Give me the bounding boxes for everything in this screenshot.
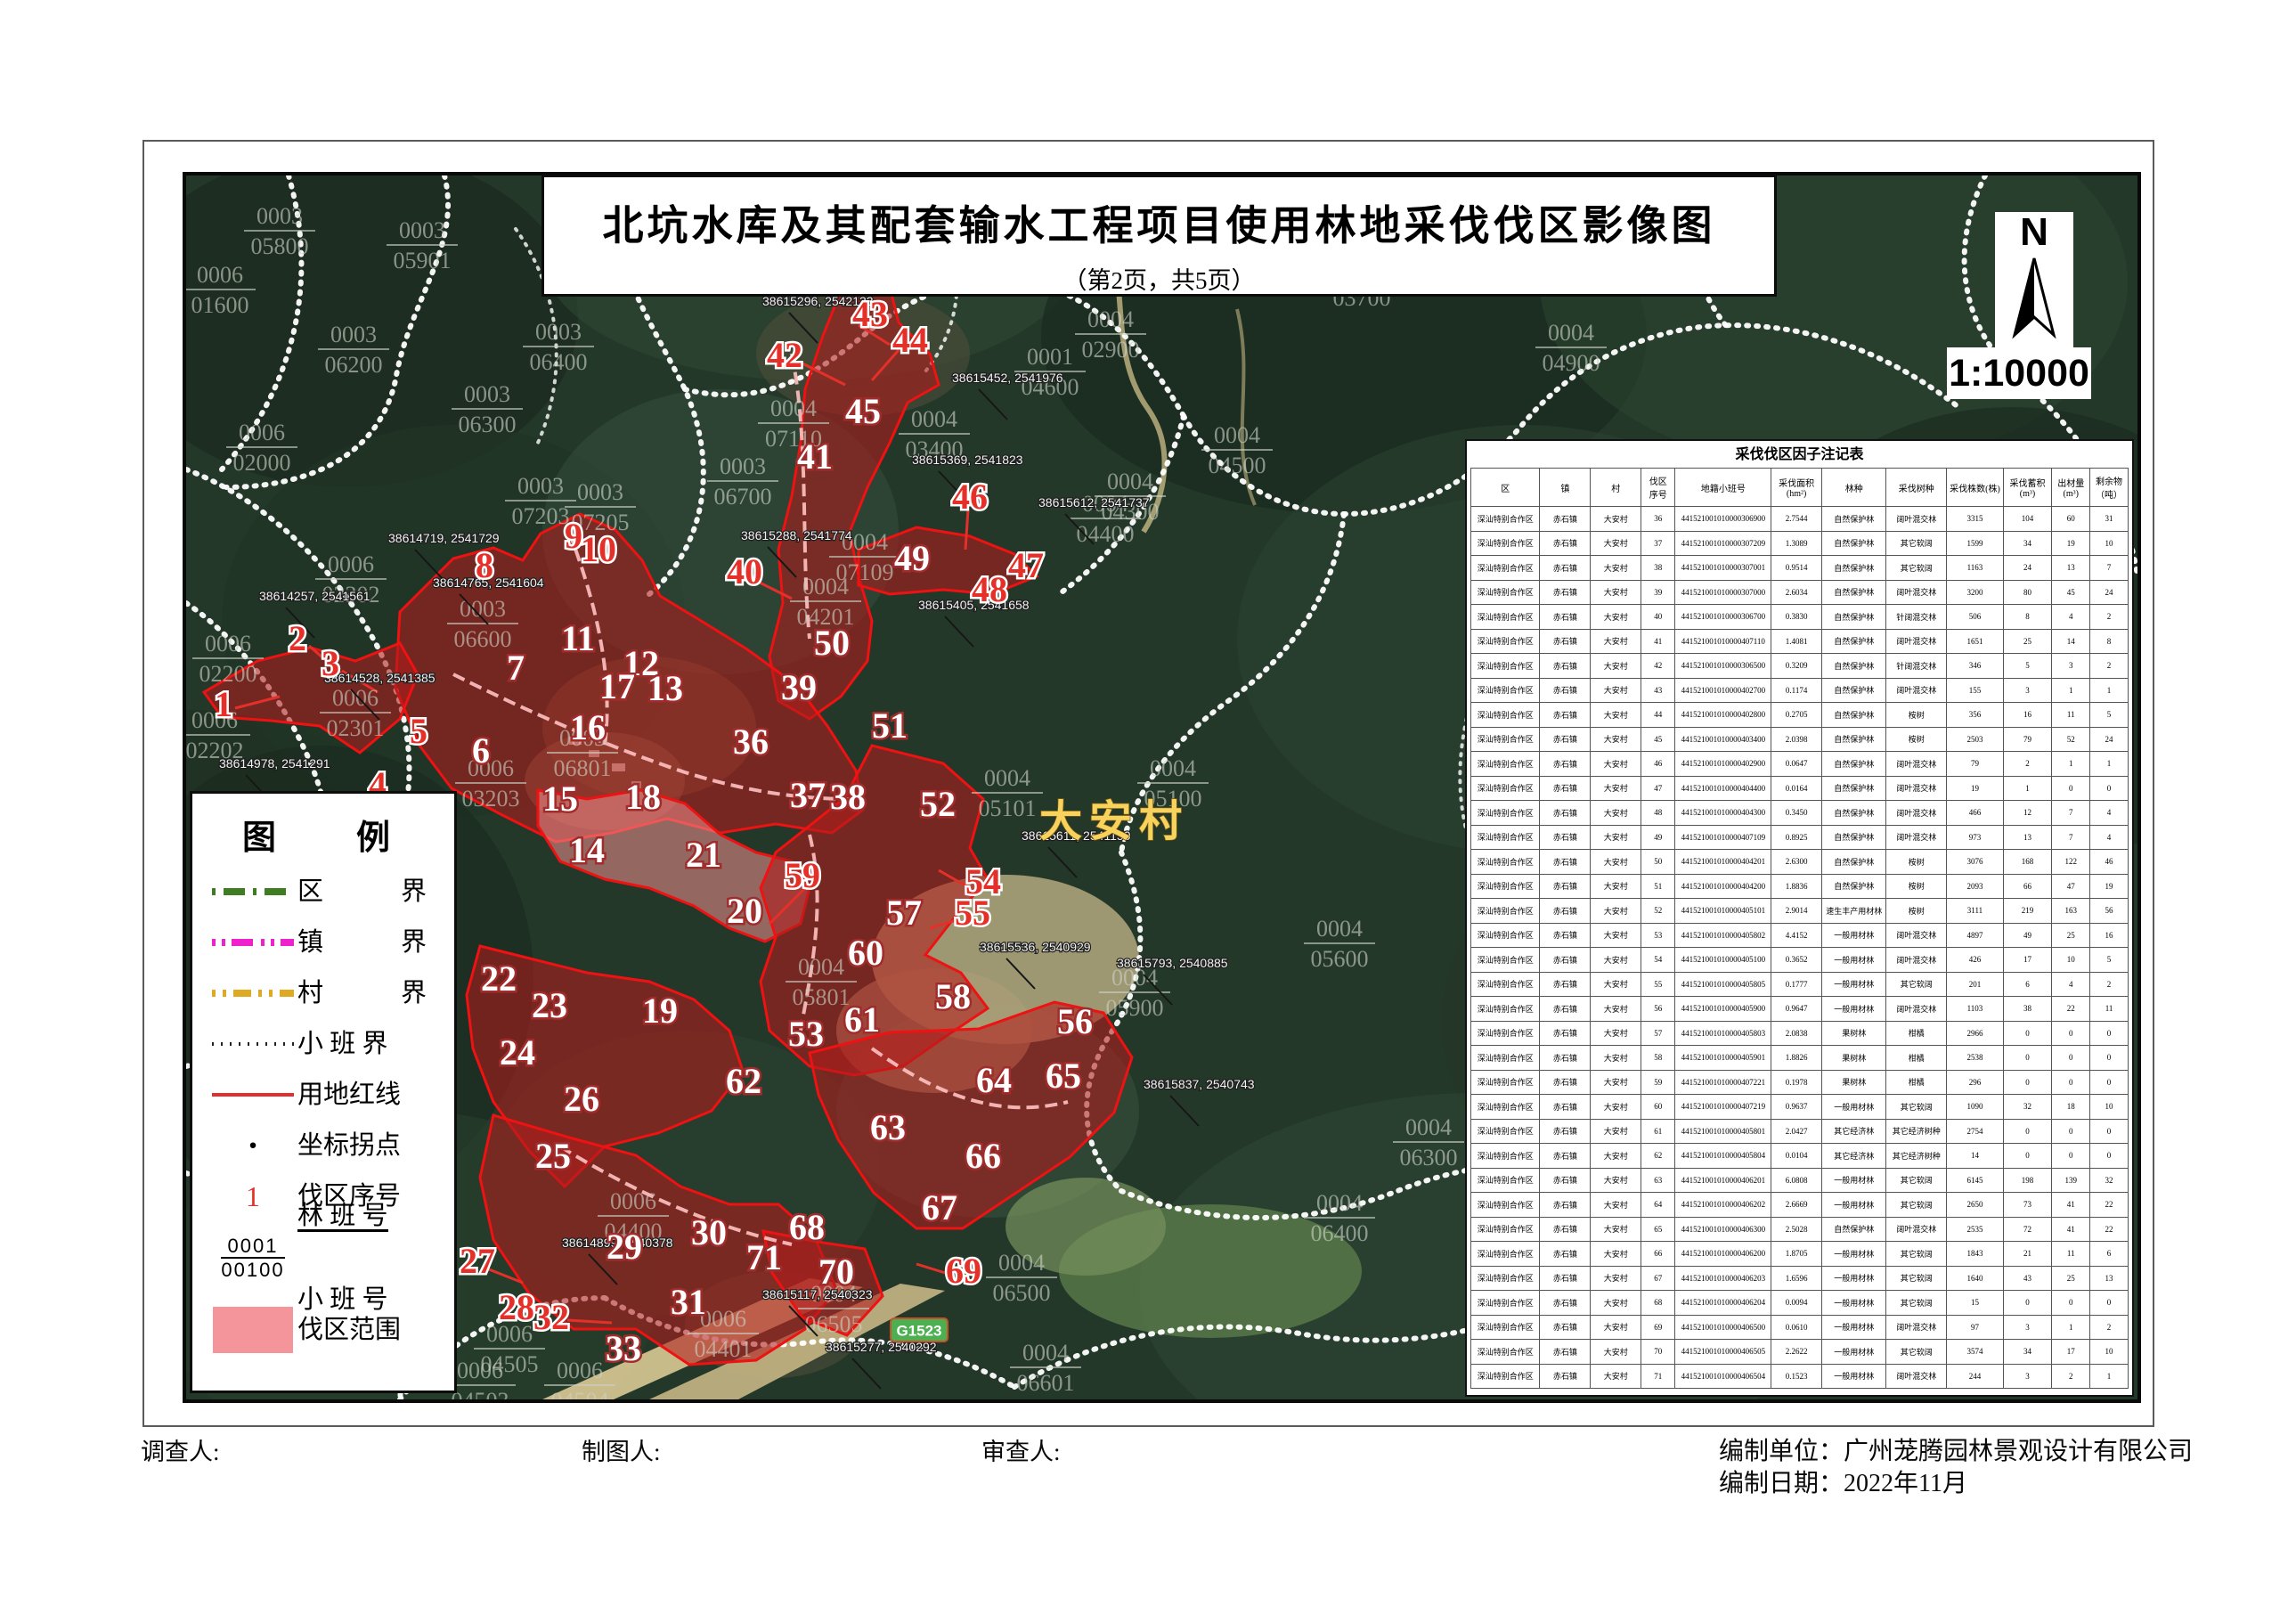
table-cell: 10 [2090, 1340, 2129, 1365]
table-cell: 3315 [1947, 507, 2003, 532]
table-cell: 大安村 [1591, 801, 1641, 826]
table-cell: 31 [2090, 507, 2129, 532]
table-cell: 赤石镇 [1540, 850, 1591, 875]
subcompartment-boundary-swatch [208, 1039, 297, 1049]
felling-area-number: 63 [870, 1107, 906, 1147]
parcel-label: 0003 [330, 322, 377, 347]
table-cell: 19 [2090, 874, 2129, 899]
table-cell: 441521001010000405100 [1675, 948, 1771, 973]
coordinate-point-swatch: · [208, 1141, 297, 1150]
felling-area-number: 55 [955, 893, 990, 933]
table-cell: 41 [1641, 629, 1675, 654]
parcel-label: 02000 [233, 450, 291, 476]
parcel-label: 0006 [610, 1188, 656, 1214]
table-row: 深汕特别合作区赤石镇大安村694415210010100004065000.06… [1471, 1315, 2129, 1340]
table-cell: 104 [2003, 507, 2052, 532]
table-row: 深汕特别合作区赤石镇大安村474415210010100004044000.01… [1471, 776, 2129, 801]
table-cell: 3 [2003, 1364, 2052, 1389]
table-cell: 19 [1947, 776, 2003, 801]
table-cell: 大安村 [1591, 1217, 1641, 1242]
felling-area-number: 23 [532, 985, 567, 1025]
table-cell: 0.3209 [1771, 654, 1822, 679]
table-cell: 2503 [1947, 727, 2003, 752]
parcel-label: 06600 [454, 626, 512, 652]
table-cell: 1090 [1947, 1095, 2003, 1120]
table-cell: 一般用材林 [1822, 1242, 1886, 1267]
table-cell: 赤石镇 [1540, 580, 1591, 605]
table-cell: 42 [1641, 654, 1675, 679]
table-cell: 40 [1641, 605, 1675, 630]
table-cell: 大安村 [1591, 1364, 1641, 1389]
town-boundary-swatch [208, 937, 297, 948]
coordinate-label: 38614528, 2541385 [324, 671, 436, 685]
table-cell: 21 [2003, 1242, 2052, 1267]
table-cell: 2650 [1947, 1193, 2003, 1218]
table-cell: 阔叶混交林 [1886, 1315, 1947, 1340]
coordinate-label: 38615288, 2541774 [741, 528, 852, 542]
coordinate-label: 38615117, 2540323 [762, 1287, 873, 1301]
table-cell: 阔叶混交林 [1886, 580, 1947, 605]
table-cell: 4 [2052, 605, 2090, 630]
parcel-label: 06300 [1400, 1145, 1458, 1170]
table-cell: 1 [2003, 776, 2052, 801]
table-cell: 深汕特别合作区 [1471, 948, 1540, 973]
table-cell: 大安村 [1591, 1193, 1641, 1218]
north-label: N [1995, 212, 2073, 253]
table-cell: 441521001010000404300 [1675, 801, 1771, 826]
felling-area-number: 11 [561, 618, 595, 658]
table-cell: 0.1174 [1771, 678, 1822, 703]
column-header: 出材量 (m³) [2052, 469, 2090, 507]
felling-area-number: 15 [542, 779, 578, 819]
felling-area-number: 64 [976, 1060, 1012, 1100]
table-cell: 0.3652 [1771, 948, 1822, 973]
table-cell: 深汕特别合作区 [1471, 1070, 1540, 1095]
table-cell: 51 [1641, 874, 1675, 899]
felling-area-number: 17 [599, 666, 635, 706]
table-cell: 72 [2003, 1217, 2052, 1242]
parcel-label: 0004 [998, 1250, 1045, 1276]
table-cell: 赤石镇 [1540, 1291, 1591, 1316]
table-cell: 一般用材林 [1822, 1364, 1886, 1389]
table-cell: 53 [1641, 923, 1675, 948]
table-cell: 1 [2090, 678, 2129, 703]
table-cell: 34 [2003, 1340, 2052, 1365]
table-cell: 2.6669 [1771, 1193, 1822, 1218]
felling-area-number: 18 [625, 777, 661, 817]
table-cell: 52 [2052, 727, 2090, 752]
table-cell: 346 [1947, 654, 2003, 679]
table-cell: 0.9514 [1771, 556, 1822, 581]
table-row: 深汕特别合作区赤石镇大安村574415210010100004058032.08… [1471, 1021, 2129, 1046]
table-cell: 2966 [1947, 1021, 2003, 1046]
table-cell: 506 [1947, 605, 2003, 630]
table-cell: 赤石镇 [1540, 507, 1591, 532]
table-cell: 深汕特别合作区 [1471, 678, 1540, 703]
district-boundary-swatch [208, 886, 297, 897]
table-cell: 441521001010000403400 [1675, 727, 1771, 752]
parcel-label: 06400 [530, 349, 588, 375]
table-cell: 大安村 [1591, 850, 1641, 875]
table-cell: 一般用材林 [1822, 923, 1886, 948]
table-cell: 1 [2090, 752, 2129, 777]
felling-area-number: 1 [215, 684, 232, 724]
table-row: 深汕特别合作区赤石镇大安村484415210010100004043000.34… [1471, 801, 2129, 826]
table-cell: 0 [2052, 1046, 2090, 1071]
table-cell: 深汕特别合作区 [1471, 1046, 1540, 1071]
table-cell: 441521001010000306500 [1675, 654, 1771, 679]
north-arrow-box: N [1995, 212, 2073, 349]
table-cell: 14 [1947, 1144, 2003, 1169]
parcel-label: 0006 [557, 1358, 603, 1383]
table-cell: 19 [2052, 531, 2090, 556]
table-cell: 2.6300 [1771, 850, 1822, 875]
table-row: 深汕特别合作区赤石镇大安村454415210010100004034002.03… [1471, 727, 2129, 752]
felling-area-number: 13 [647, 668, 683, 708]
table-cell: 441521001010000406204 [1675, 1291, 1771, 1316]
table-cell: 大安村 [1591, 1021, 1641, 1046]
felling-area-number: 3 [322, 643, 339, 683]
table-cell: 43 [2003, 1266, 2052, 1291]
legend-item-village-boundary: 村 界 [208, 975, 438, 1011]
coordinate-label: 38614257, 2541561 [259, 589, 370, 603]
table-cell: 深汕特别合作区 [1471, 899, 1540, 924]
table-row: 深汕特别合作区赤石镇大安村594415210010100004072210.19… [1471, 1070, 2129, 1095]
table-cell: 其它软阔 [1886, 1340, 1947, 1365]
table-cell: 38 [1641, 556, 1675, 581]
table-cell: 441521001010000407219 [1675, 1095, 1771, 1120]
table-cell: 62 [1641, 1144, 1675, 1169]
table-cell: 3076 [1947, 850, 2003, 875]
table-cell: 441521001010000406200 [1675, 1242, 1771, 1267]
table-cell: 自然保护林 [1822, 556, 1886, 581]
table-cell: 73 [2003, 1193, 2052, 1218]
table-cell: 8 [2090, 629, 2129, 654]
table-cell: 赤石镇 [1540, 1095, 1591, 1120]
table-cell: 深汕特别合作区 [1471, 580, 1540, 605]
table-cell: 22 [2090, 1217, 2129, 1242]
coordinate-label: 38615837, 2540743 [1144, 1077, 1255, 1091]
table-cell: 0 [2052, 1119, 2090, 1144]
production-date: 编制日期：2022年11月 [1719, 1468, 2193, 1500]
table-cell: 441521001010000406202 [1675, 1193, 1771, 1218]
drafter-label: 制图人: [582, 1432, 661, 1467]
column-header: 区 [1471, 469, 1540, 507]
table-cell: 10 [2090, 531, 2129, 556]
table-cell: 桉树 [1886, 850, 1947, 875]
table-cell: 桉树 [1886, 727, 1947, 752]
table-cell: 2.0838 [1771, 1021, 1822, 1046]
table-cell: 阔叶混交林 [1886, 948, 1947, 973]
parcel-label: 0003 [399, 217, 445, 243]
felling-area-number: 14 [569, 830, 605, 870]
table-cell: 深汕特别合作区 [1471, 825, 1540, 850]
table-cell: 441521001010000407110 [1675, 629, 1771, 654]
parcel-label: 0004 [798, 954, 844, 980]
parcel-label: 0004 [984, 765, 1030, 791]
table-cell: 自然保护林 [1822, 850, 1886, 875]
table-cell: 大安村 [1591, 1266, 1641, 1291]
table-cell: 122 [2052, 850, 2090, 875]
column-header: 地籍小班号 [1675, 469, 1771, 507]
harvest-table: 区镇村伐区 序号地籍小班号采伐面积 (hm²)林种采伐树种采伐株数(株)采伐蓄积… [1470, 468, 2129, 1389]
map-scale: 1:10000 [1947, 347, 2091, 399]
table-cell: 0.2705 [1771, 703, 1822, 728]
table-cell: 22 [2090, 1193, 2129, 1218]
table-cell: 大安村 [1591, 1340, 1641, 1365]
table-cell: 赤石镇 [1540, 801, 1591, 826]
table-cell: 441521001010000404201 [1675, 850, 1771, 875]
parcel-label: 0003 [535, 319, 582, 345]
coordinate-label: 38615536, 2540929 [980, 940, 1091, 954]
table-cell: 441521001010000405101 [1675, 899, 1771, 924]
table-cell: 441521001010000306700 [1675, 605, 1771, 630]
felling-area-number: 44 [892, 320, 928, 360]
table-cell: 其它软阔 [1886, 1193, 1947, 1218]
coordinate-label: 38614978, 2541291 [219, 756, 330, 771]
table-cell: 0.0647 [1771, 752, 1822, 777]
felling-area-number: 28 [499, 1287, 534, 1327]
parcel-label: 05901 [394, 248, 452, 273]
table-cell: 赤石镇 [1540, 1217, 1591, 1242]
table-row: 深汕特别合作区赤石镇大安村654415210010100004063002.50… [1471, 1217, 2129, 1242]
table-cell: 66 [2003, 874, 2052, 899]
table-cell: 1 [2052, 752, 2090, 777]
table-cell: 10 [2090, 1095, 2129, 1120]
table-cell: 38 [2003, 997, 2052, 1022]
legend-item-town-boundary: 镇 界 [208, 925, 438, 960]
table-cell: 426 [1947, 948, 2003, 973]
table-cell: 自然保护林 [1822, 727, 1886, 752]
parcel-label: 0006 [205, 631, 251, 657]
parcel-label: 04900 [1543, 350, 1600, 376]
felling-area-number: 58 [935, 976, 971, 1016]
table-cell: 2535 [1947, 1217, 2003, 1242]
table-cell: 赤石镇 [1540, 678, 1591, 703]
table-cell: 3 [2003, 678, 2052, 703]
felling-area-number: 6 [472, 730, 490, 771]
table-cell: 356 [1947, 703, 2003, 728]
table-cell: 52 [1641, 899, 1675, 924]
column-header: 采伐蓄积 (m³) [2003, 469, 2052, 507]
table-cell: 速生丰产用材林 [1822, 899, 1886, 924]
table-cell: 219 [2003, 899, 2052, 924]
table-cell: 深汕特别合作区 [1471, 556, 1540, 581]
table-cell: 7 [2052, 825, 2090, 850]
table-cell: 其它软阔 [1886, 1266, 1947, 1291]
table-cell: 柑橘 [1886, 1070, 1947, 1095]
table-cell: 赤石镇 [1540, 1144, 1591, 1169]
table-cell: 441521001010000402900 [1675, 752, 1771, 777]
felling-area-number: 62 [726, 1061, 761, 1101]
parcel-label: 06601 [1017, 1370, 1075, 1396]
coordinate-label: 38615369, 2541823 [912, 453, 1023, 467]
table-row: 深汕特别合作区赤石镇大安村404415210010100003067000.38… [1471, 605, 2129, 630]
table-cell: 大安村 [1591, 972, 1641, 997]
felling-area-number: 48 [972, 569, 1007, 609]
parcel-label: 06505 [805, 1311, 863, 1337]
table-row: 深汕特别合作区赤石镇大安村624415210010100004058040.01… [1471, 1144, 2129, 1169]
table-cell: 441521001010000307000 [1675, 580, 1771, 605]
table-cell: 65 [1641, 1217, 1675, 1242]
table-cell: 46 [2090, 850, 2129, 875]
table-row: 深汕特别合作区赤石镇大安村494415210010100004071090.89… [1471, 825, 2129, 850]
table-cell: 64 [1641, 1193, 1675, 1218]
table-cell: 大安村 [1591, 899, 1641, 924]
table-cell: 2 [2090, 605, 2129, 630]
table-cell: 1843 [1947, 1242, 2003, 1267]
table-cell: 赤石镇 [1540, 1340, 1591, 1365]
table-cell: 24 [2090, 727, 2129, 752]
table-cell: 0 [2003, 1070, 2052, 1095]
harvest-table-body: 深汕特别合作区赤石镇大安村364415210010100003069002.75… [1471, 507, 2129, 1389]
table-cell: 0 [2090, 1291, 2129, 1316]
table-cell: 2093 [1947, 874, 2003, 899]
column-header: 村 [1591, 469, 1641, 507]
table-cell: 深汕特别合作区 [1471, 703, 1540, 728]
table-cell: 14 [2052, 629, 2090, 654]
table-cell: 58 [1641, 1046, 1675, 1071]
table-cell: 阔叶混交林 [1886, 629, 1947, 654]
table-cell: 阔叶混交林 [1886, 825, 1947, 850]
table-cell: 70 [1641, 1340, 1675, 1365]
table-cell: 3 [2003, 1315, 2052, 1340]
table-cell: 大安村 [1591, 1095, 1641, 1120]
table-cell: 一般用材林 [1822, 1266, 1886, 1291]
table-cell: 25 [2052, 923, 2090, 948]
table-cell: 13 [2052, 556, 2090, 581]
table-cell: 大安村 [1591, 923, 1641, 948]
felling-area-number: 51 [872, 705, 908, 746]
table-cell: 深汕特别合作区 [1471, 629, 1540, 654]
parcel-label: 0006 [700, 1306, 746, 1332]
table-cell: 赤石镇 [1540, 1315, 1591, 1340]
table-cell: 大安村 [1591, 1144, 1641, 1169]
table-cell: 1 [2052, 678, 2090, 703]
table-cell: 赤石镇 [1540, 727, 1591, 752]
table-cell: 1599 [1947, 531, 2003, 556]
table-row: 深汕特别合作区赤石镇大安村684415210010100004062040.00… [1471, 1291, 2129, 1316]
table-cell: 深汕特别合作区 [1471, 1021, 1540, 1046]
table-cell: 大安村 [1591, 1315, 1641, 1340]
table-cell: 果树林 [1822, 1021, 1886, 1046]
parcel-label: 05101 [979, 795, 1037, 821]
table-cell: 深汕特别合作区 [1471, 1144, 1540, 1169]
parcel-label: 0004 [1316, 1190, 1363, 1216]
table-cell: 45 [2052, 580, 2090, 605]
table-cell: 55 [1641, 972, 1675, 997]
table-cell: 441521001010000407109 [1675, 825, 1771, 850]
table-cell: 0 [2052, 776, 2090, 801]
table-cell: 68 [1641, 1291, 1675, 1316]
table-cell: 2 [2003, 752, 2052, 777]
compartment-no-swatch: 000100100 [208, 1235, 297, 1282]
credits-block: 编制单位：广州茏腾园林景观设计有限公司 编制日期：2022年11月 [1719, 1436, 2193, 1500]
table-cell: 桉树 [1886, 874, 1947, 899]
table-cell: 441521001010000402800 [1675, 703, 1771, 728]
table-cell: 60 [1641, 1095, 1675, 1120]
table-cell: 17 [2052, 1340, 2090, 1365]
table-row: 深汕特别合作区赤石镇大安村634415210010100004062016.08… [1471, 1168, 2129, 1193]
table-cell: 阔叶混交林 [1886, 1217, 1947, 1242]
felling-area-number: 56 [1057, 1001, 1093, 1041]
parcel-label: 06500 [993, 1280, 1051, 1306]
table-cell: 163 [2052, 899, 2090, 924]
table-cell: 441521001010000405804 [1675, 1144, 1771, 1169]
table-cell: 1.6596 [1771, 1266, 1822, 1291]
table-cell: 56 [2090, 899, 2129, 924]
table-cell: 深汕特别合作区 [1471, 654, 1540, 679]
table-cell: 0 [2003, 1144, 2052, 1169]
table-cell: 1103 [1947, 997, 2003, 1022]
table-row: 深汕特别合作区赤石镇大安村644415210010100004062022.66… [1471, 1193, 2129, 1218]
table-cell: 柑橘 [1886, 1046, 1947, 1071]
table-cell: 深汕特别合作区 [1471, 1095, 1540, 1120]
parcel-label: 0003 [464, 381, 510, 407]
parcel-label: 0006 [332, 685, 379, 711]
felling-area-number: 32 [533, 1297, 569, 1337]
table-cell: 5 [2090, 703, 2129, 728]
table-cell: 赤石镇 [1540, 1046, 1591, 1071]
table-cell: 一般用材林 [1822, 997, 1886, 1022]
table-cell: 0 [2090, 1046, 2129, 1071]
parcel-label: 03203 [462, 786, 520, 811]
table-cell: 自然保护林 [1822, 507, 1886, 532]
table-cell: 赤石镇 [1540, 752, 1591, 777]
table-cell: 32 [2003, 1095, 2052, 1120]
table-cell: 2 [2090, 654, 2129, 679]
table-cell: 4.4152 [1771, 923, 1822, 948]
table-cell: 一般用材林 [1822, 1291, 1886, 1316]
table-cell: 139 [2052, 1168, 2090, 1193]
table-cell: 57 [1641, 1021, 1675, 1046]
felling-area-number: 29 [607, 1227, 642, 1267]
parcel-label: 0004 [1087, 306, 1134, 332]
table-cell: 其它软阔 [1886, 1291, 1947, 1316]
table-cell: 赤石镇 [1540, 605, 1591, 630]
table-cell: 12 [2003, 801, 2052, 826]
parcel-label: 05600 [1311, 946, 1369, 972]
table-cell: 0 [2052, 1291, 2090, 1316]
legend-title: 图 例 [217, 810, 438, 859]
felling-area-no-swatch: 1 [208, 1180, 297, 1213]
felling-area-number: 69 [946, 1251, 981, 1291]
table-cell: 自然保护林 [1822, 825, 1886, 850]
parcel-label: 0003 [517, 473, 564, 499]
table-cell: 大安村 [1591, 1291, 1641, 1316]
table-cell: 自然保护林 [1822, 654, 1886, 679]
parcel-label: 0004 [770, 396, 817, 421]
table-row: 深汕特别合作区赤石镇大安村394415210010100003070002.60… [1471, 580, 2129, 605]
table-cell: 0.1978 [1771, 1070, 1822, 1095]
table-row: 深汕特别合作区赤石镇大安村374415210010100003072091.30… [1471, 531, 2129, 556]
felling-area-number: 21 [686, 835, 721, 875]
table-cell: 1.3089 [1771, 531, 1822, 556]
table-cell: 66 [1641, 1242, 1675, 1267]
table-cell: 自然保护林 [1822, 605, 1886, 630]
table-cell: 2538 [1947, 1046, 2003, 1071]
table-cell: 47 [1641, 776, 1675, 801]
felling-area-number: 45 [845, 391, 881, 431]
table-cell: 25 [2003, 629, 2052, 654]
table-cell: 赤石镇 [1540, 1266, 1591, 1291]
felling-area-number: 39 [781, 667, 817, 707]
table-cell: 18 [2052, 1095, 2090, 1120]
table-cell: 赤石镇 [1540, 531, 1591, 556]
table-row: 深汕特别合作区赤石镇大安村664415210010100004062001.87… [1471, 1242, 2129, 1267]
table-cell: 441521001010000406203 [1675, 1266, 1771, 1291]
table-cell: 阔叶混交林 [1886, 997, 1947, 1022]
